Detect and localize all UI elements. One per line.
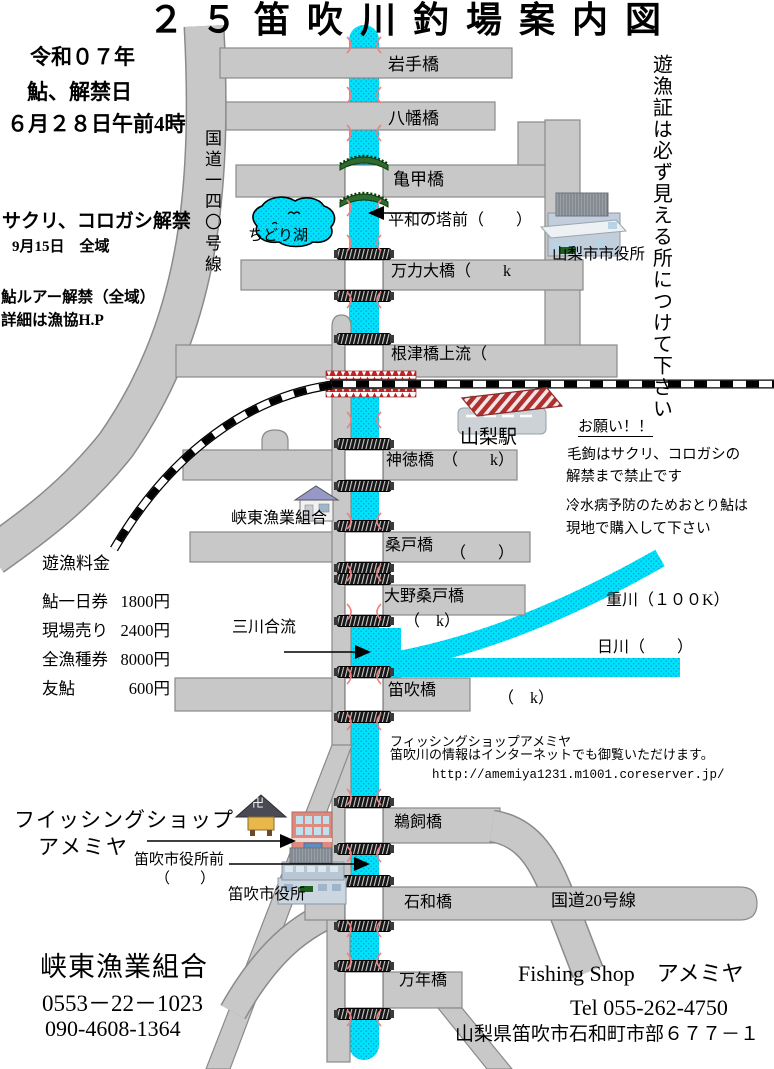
bridge-icon <box>334 481 394 492</box>
onokuwado-bridge-label: 大野桑戸橋 <box>384 588 464 606</box>
fuefuki-cityhall-mae-paren: （ ） <box>155 871 215 888</box>
bridge-icon <box>334 712 394 723</box>
fee-label: 現場売り <box>42 617 108 641</box>
kyoto-coop-label: 峡東漁業組合 <box>231 510 327 528</box>
manriki-bridge-label: 万力大橋（ k <box>391 263 511 281</box>
lake-label: ちどり湖 <box>248 228 308 245</box>
route20-label: 国道20号線 <box>551 891 636 910</box>
bridge-icon <box>334 1009 394 1020</box>
coop-tel2-label: 090-4608-1364 <box>45 1017 181 1042</box>
coop-name-label: 峡東漁業組合 <box>40 952 208 982</box>
fee-value: 1800円 <box>121 588 171 612</box>
bridge-icon <box>334 961 394 972</box>
bridge-icon <box>334 797 394 808</box>
route140-label: 国道一四〇号線 <box>202 129 221 299</box>
bridge-icon <box>334 439 394 450</box>
bridge-icon <box>334 574 394 585</box>
sankawa-label: 三川合流 <box>232 619 296 637</box>
ukai-bridge-label: 鵜飼橋 <box>394 814 442 832</box>
fee-value: 2400円 <box>121 617 171 641</box>
bridge-icon <box>334 616 394 627</box>
bridge-icon <box>334 563 394 574</box>
kikko-bridge-label: 亀甲橋 <box>393 170 444 189</box>
lure-detail-label: 詳細は漁協H.P <box>1 312 104 329</box>
open-date-label: ６月２８日午前4時 <box>7 113 186 137</box>
kuwado-paren-label: （ ） <box>450 545 514 563</box>
kuwado-bridge-label: 桑戸橋 <box>385 537 433 555</box>
fuefukibashi-paren-label: （ k） <box>498 690 554 708</box>
isawa-bridge-label: 石和橋 <box>404 894 452 912</box>
nezu-bridge-label: 根津橋上流（ <box>391 346 487 364</box>
shop-callout-line2: アメミヤ <box>38 836 129 860</box>
lure-label: 鮎ルアー解禁（全域） <box>1 289 155 306</box>
fuefuki-cityhall-label: 笛吹市役所 <box>228 886 306 903</box>
jintoku-bridge-label: 神徳橋 （ k） <box>386 452 514 470</box>
shop-tel-label: Tel 055-262-4750 <box>570 996 728 1021</box>
bridge-icon <box>334 291 394 302</box>
yahata-bridge-label: 八幡橋 <box>388 109 439 128</box>
fee-value: 600円 <box>129 675 170 699</box>
fee-label: 友鮎 <box>42 675 75 699</box>
shop-url: http://amemiya1231.m1001.coreserver.jp/ <box>432 768 725 782</box>
request-heading-text: お願い！！ <box>578 419 653 437</box>
sakuri-date-label: 9月15日 全域 <box>12 239 110 256</box>
yamanashi-cityhall-label: 山梨市市役所 <box>552 246 645 263</box>
sakuri-label: サクリ、コロガシ解禁 <box>2 211 191 232</box>
fee-label: 鮎一日券 <box>42 588 108 612</box>
fee-row: 現場売り 2400円 <box>42 617 170 641</box>
fishing-map-page: ２５笛吹川釣場案内図 令和０７年 鮎、解禁日 ６月２８日午前4時 サクリ、コロガ… <box>0 0 774 1069</box>
kikko-bridge-road <box>236 165 547 197</box>
shop-callout-line1: フイッシングショップ <box>14 809 234 833</box>
fuefuki-cityhall-mae-label: 笛吹市役所前 <box>134 852 224 869</box>
license-notice-vertical: 遊漁証は必ず見える所につけて下さい <box>649 54 671 414</box>
fee-row: 全漁種券 8000円 <box>42 646 170 670</box>
coop-tel1-label: 0553－22－1023 <box>42 991 203 1017</box>
omokawa-label: 重川（１００K） <box>606 592 730 610</box>
fee-label: 全漁種券 <box>42 646 108 670</box>
request-heading: お願い！！ <box>578 419 653 436</box>
request-line1: 毛鉤はサクリ、コロガシの <box>567 447 740 463</box>
onokuwado-paren-label: （ k） <box>404 613 460 631</box>
ayu-open-label: 鮎、解禁日 <box>27 81 132 105</box>
shop-name-label: Fishing Shop アメミヤ <box>518 962 744 987</box>
iwate-bridge-road <box>220 48 512 78</box>
fee-row: 友鮎 600円 <box>42 675 170 699</box>
bridge-icon <box>334 921 394 932</box>
fee-heading: 遊漁料金 <box>42 549 170 574</box>
page-title: ２５笛吹川釣場案内図 <box>148 0 678 40</box>
iwate-bridge-label: 岩手橋 <box>388 55 439 74</box>
bridge-icon <box>334 521 394 532</box>
fee-value: 8000円 <box>121 646 171 670</box>
request-line3: 冷水病予防のためおとり鮎は <box>566 499 748 515</box>
bridge-icon <box>334 667 394 678</box>
yahata-bridge-road <box>226 102 495 130</box>
fuefukibashi-label: 笛吹橋 <box>388 682 436 700</box>
bridge-icon <box>334 334 394 345</box>
rail-bridge-icon <box>326 371 416 379</box>
bridge-icon <box>334 844 394 855</box>
request-line2: 解禁まで禁止です <box>566 469 682 485</box>
mannen-bridge-label: 万年橋 <box>399 972 447 990</box>
shop-address-label: 山梨県笛吹市石和町市部６７７－１ <box>455 1024 759 1045</box>
peace-tower-label: 平和の塔前（ ） <box>388 212 532 230</box>
bridge-icon <box>334 249 394 260</box>
shop-note-line2: 笛吹川の情報はインターネットでも御覧いただけます。 <box>390 748 714 763</box>
manji-icon: 卍 <box>252 797 264 810</box>
fee-table: 遊漁料金 鮎一日券 1800円 現場売り 2400円 全漁種券 8000円 友鮎… <box>42 549 170 704</box>
era-label: 令和０７年 <box>30 46 135 70</box>
fee-row: 鮎一日券 1800円 <box>42 588 170 612</box>
request-line4: 現地で購入して下さい <box>566 521 711 537</box>
hikawa-label: 日川（ ） <box>597 639 693 657</box>
yamanashi-station-label: 山梨駅 <box>460 427 517 448</box>
